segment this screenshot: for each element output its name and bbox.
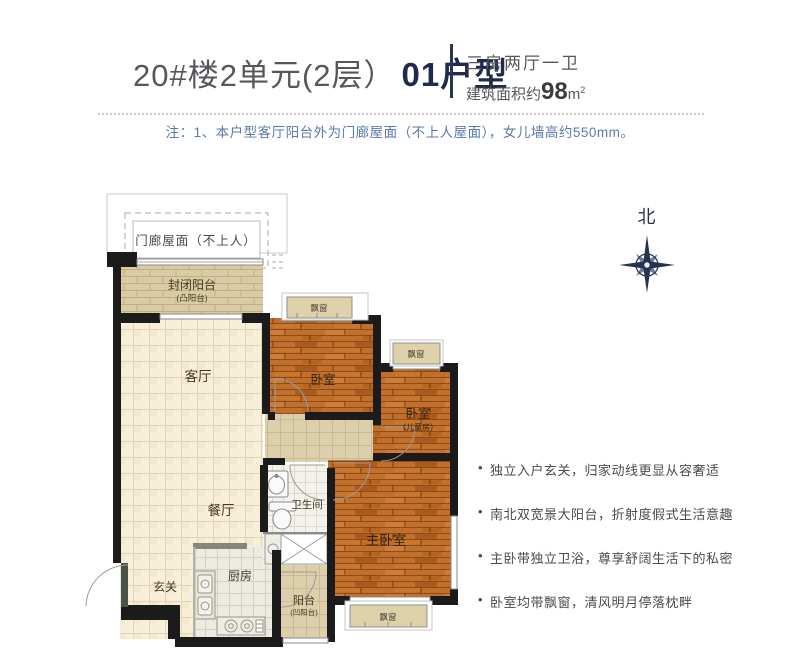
stove [217,617,265,635]
area-value: 98 [541,78,568,105]
enclosed-balcony-label: 封闭阳台 [168,277,216,292]
floorplan-page: 20#楼2单元(2层）01户型 三房两厅一卫 建筑面积约98m2 注：1、本户型… [0,0,800,669]
bathroom-label: 卫生间 [291,498,323,511]
bathroom-sink [265,471,288,497]
balcony-label: 阳台 [293,593,315,607]
kitchen-label: 厨房 [228,568,252,583]
enclosed-balcony-sublabel: (凸阳台) [176,293,207,303]
note-text: 注：1、本户型客厅阳台外为门廊屋面（不上人屋面），女儿墙高约550mm。 [0,121,800,141]
bedroom2-label: 卧室 [405,406,430,421]
compass-north-label: 北 [616,203,678,229]
compass-rose-icon [617,231,677,295]
entry-label: 玄关 [153,579,177,594]
dotted-separator [98,113,704,115]
building-unit-label: 20#楼2单元(2层） [133,58,396,93]
selling-point: 独立入户玄关，归家动线更显从容奢适 [478,460,728,479]
kitchen-partition [193,547,196,639]
bedroom2-sublabel: （儿童房） [398,422,438,432]
title-divider [450,44,453,98]
bay-window-label: 飘窗 [379,612,396,622]
bedroom1-floor [268,318,375,414]
selling-point: 南北双宽景大阳台，折射度假式生活意趣 [478,504,728,523]
compass: 北 [616,203,678,295]
bay-window-bedroom1: 飘窗 [282,293,368,320]
layout-type-label: 三房两厅一卫 [466,49,636,74]
balcony-sublabel: (凹阳台) [290,607,318,617]
bay-window-label: 飘窗 [310,303,327,313]
bedroom1-label: 卧室 [310,372,335,387]
bay-window-label: 飘窗 [407,349,424,359]
kitchen-counter [195,571,215,619]
kitchen-partition [193,543,247,549]
floorplan-drawing: 门廊屋面（不上人） [85,185,480,663]
selling-point: 卧室均带飘窗，清风明月停落枕畔 [478,592,728,611]
entry-door-leaf [121,563,128,607]
area-label: 建筑面积约98m2 [466,78,636,106]
selling-point: 主卧带独立卫浴，尊享舒阔生活下的私密 [478,548,728,567]
bay-window-bedroom2: 飘窗 [390,340,443,366]
living-room-label: 客厅 [185,368,212,384]
selling-points-list: 独立入户玄关，归家动线更显从容奢适 南北双宽景大阳台，折射度假式生活意趣 主卧带… [478,460,728,636]
master-bedroom-label: 主卧室 [366,532,407,548]
dining-room-label: 餐厅 [208,503,235,518]
unit-summary: 三房两厅一卫 建筑面积约98m2 [466,49,636,106]
master-bedroom-floor [328,460,454,600]
porch-roof-label: 门廊屋面（不上人） [135,233,257,248]
bay-window-master: 飘窗 [345,601,432,630]
